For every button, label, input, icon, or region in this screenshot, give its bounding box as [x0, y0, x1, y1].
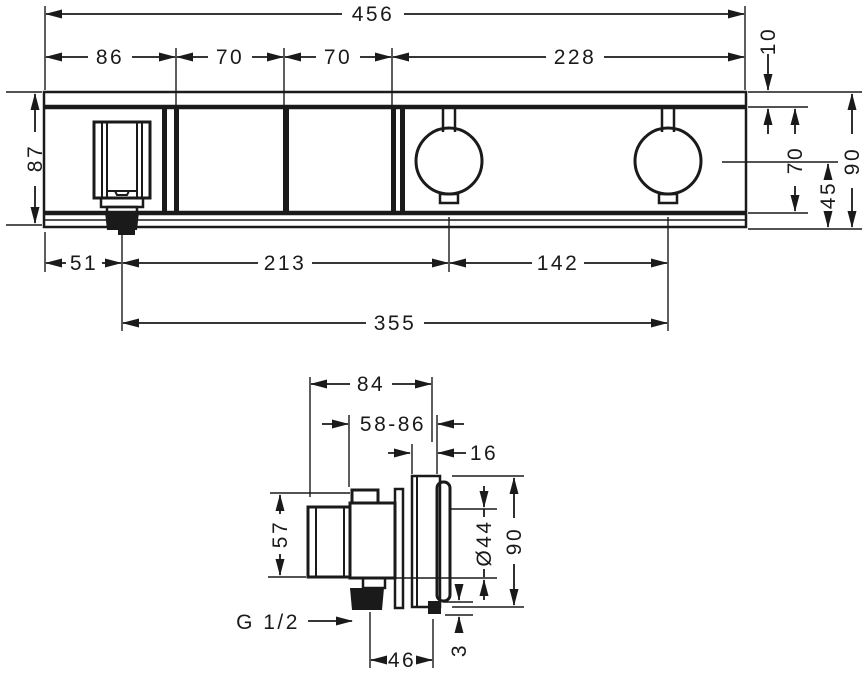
dim-plate-thickness: 16 — [470, 442, 498, 465]
dim-body-height: 70 — [784, 146, 807, 174]
dim-handle-diameter: Ø44 — [473, 519, 496, 566]
module-divider — [391, 107, 396, 213]
module-divider — [400, 107, 405, 213]
dim-outlet-knob2: 355 — [374, 312, 417, 335]
dim-module-2: 70 — [216, 46, 244, 69]
dim-standoff: 3 — [448, 643, 471, 657]
dim-module-1: 86 — [96, 46, 124, 69]
dim-panel-height: 87 — [24, 144, 47, 172]
dim-install-depth: 58-86 — [360, 413, 426, 436]
dim-outlet-offset: 51 — [70, 252, 98, 275]
outlet-thread — [105, 212, 139, 230]
dim-overall-depth: 84 — [357, 373, 385, 396]
dim-knob-spacing: 142 — [537, 252, 580, 275]
dim-module-4: 228 — [554, 46, 597, 69]
dim-outlet-to-front: 46 — [388, 649, 416, 672]
dim-plate-height: 90 — [503, 527, 526, 555]
thread-size-label: G 1/2 — [236, 611, 300, 634]
dim-handle-bottom: 45 — [817, 181, 840, 209]
dimension-drawing: 456 86 70 70 228 10 87 70 45 90 51 213 1… — [0, 0, 864, 675]
dim-overall-width: 456 — [352, 3, 395, 26]
module-divider — [174, 107, 179, 213]
module-divider — [162, 107, 167, 213]
dim-body-height-side: 57 — [269, 520, 292, 548]
dim-top-offset: 10 — [757, 27, 780, 55]
escutcheon-foot — [428, 601, 441, 614]
module-divider — [283, 107, 289, 213]
dim-module-3: 70 — [324, 46, 352, 69]
background — [0, 0, 864, 675]
dim-overall-height: 90 — [841, 147, 864, 175]
technical-drawing-canvas: 456 86 70 70 228 10 87 70 45 90 51 213 1… — [0, 0, 864, 675]
dim-outlet-knob1: 213 — [264, 252, 307, 275]
thread-stub-side — [350, 588, 384, 610]
